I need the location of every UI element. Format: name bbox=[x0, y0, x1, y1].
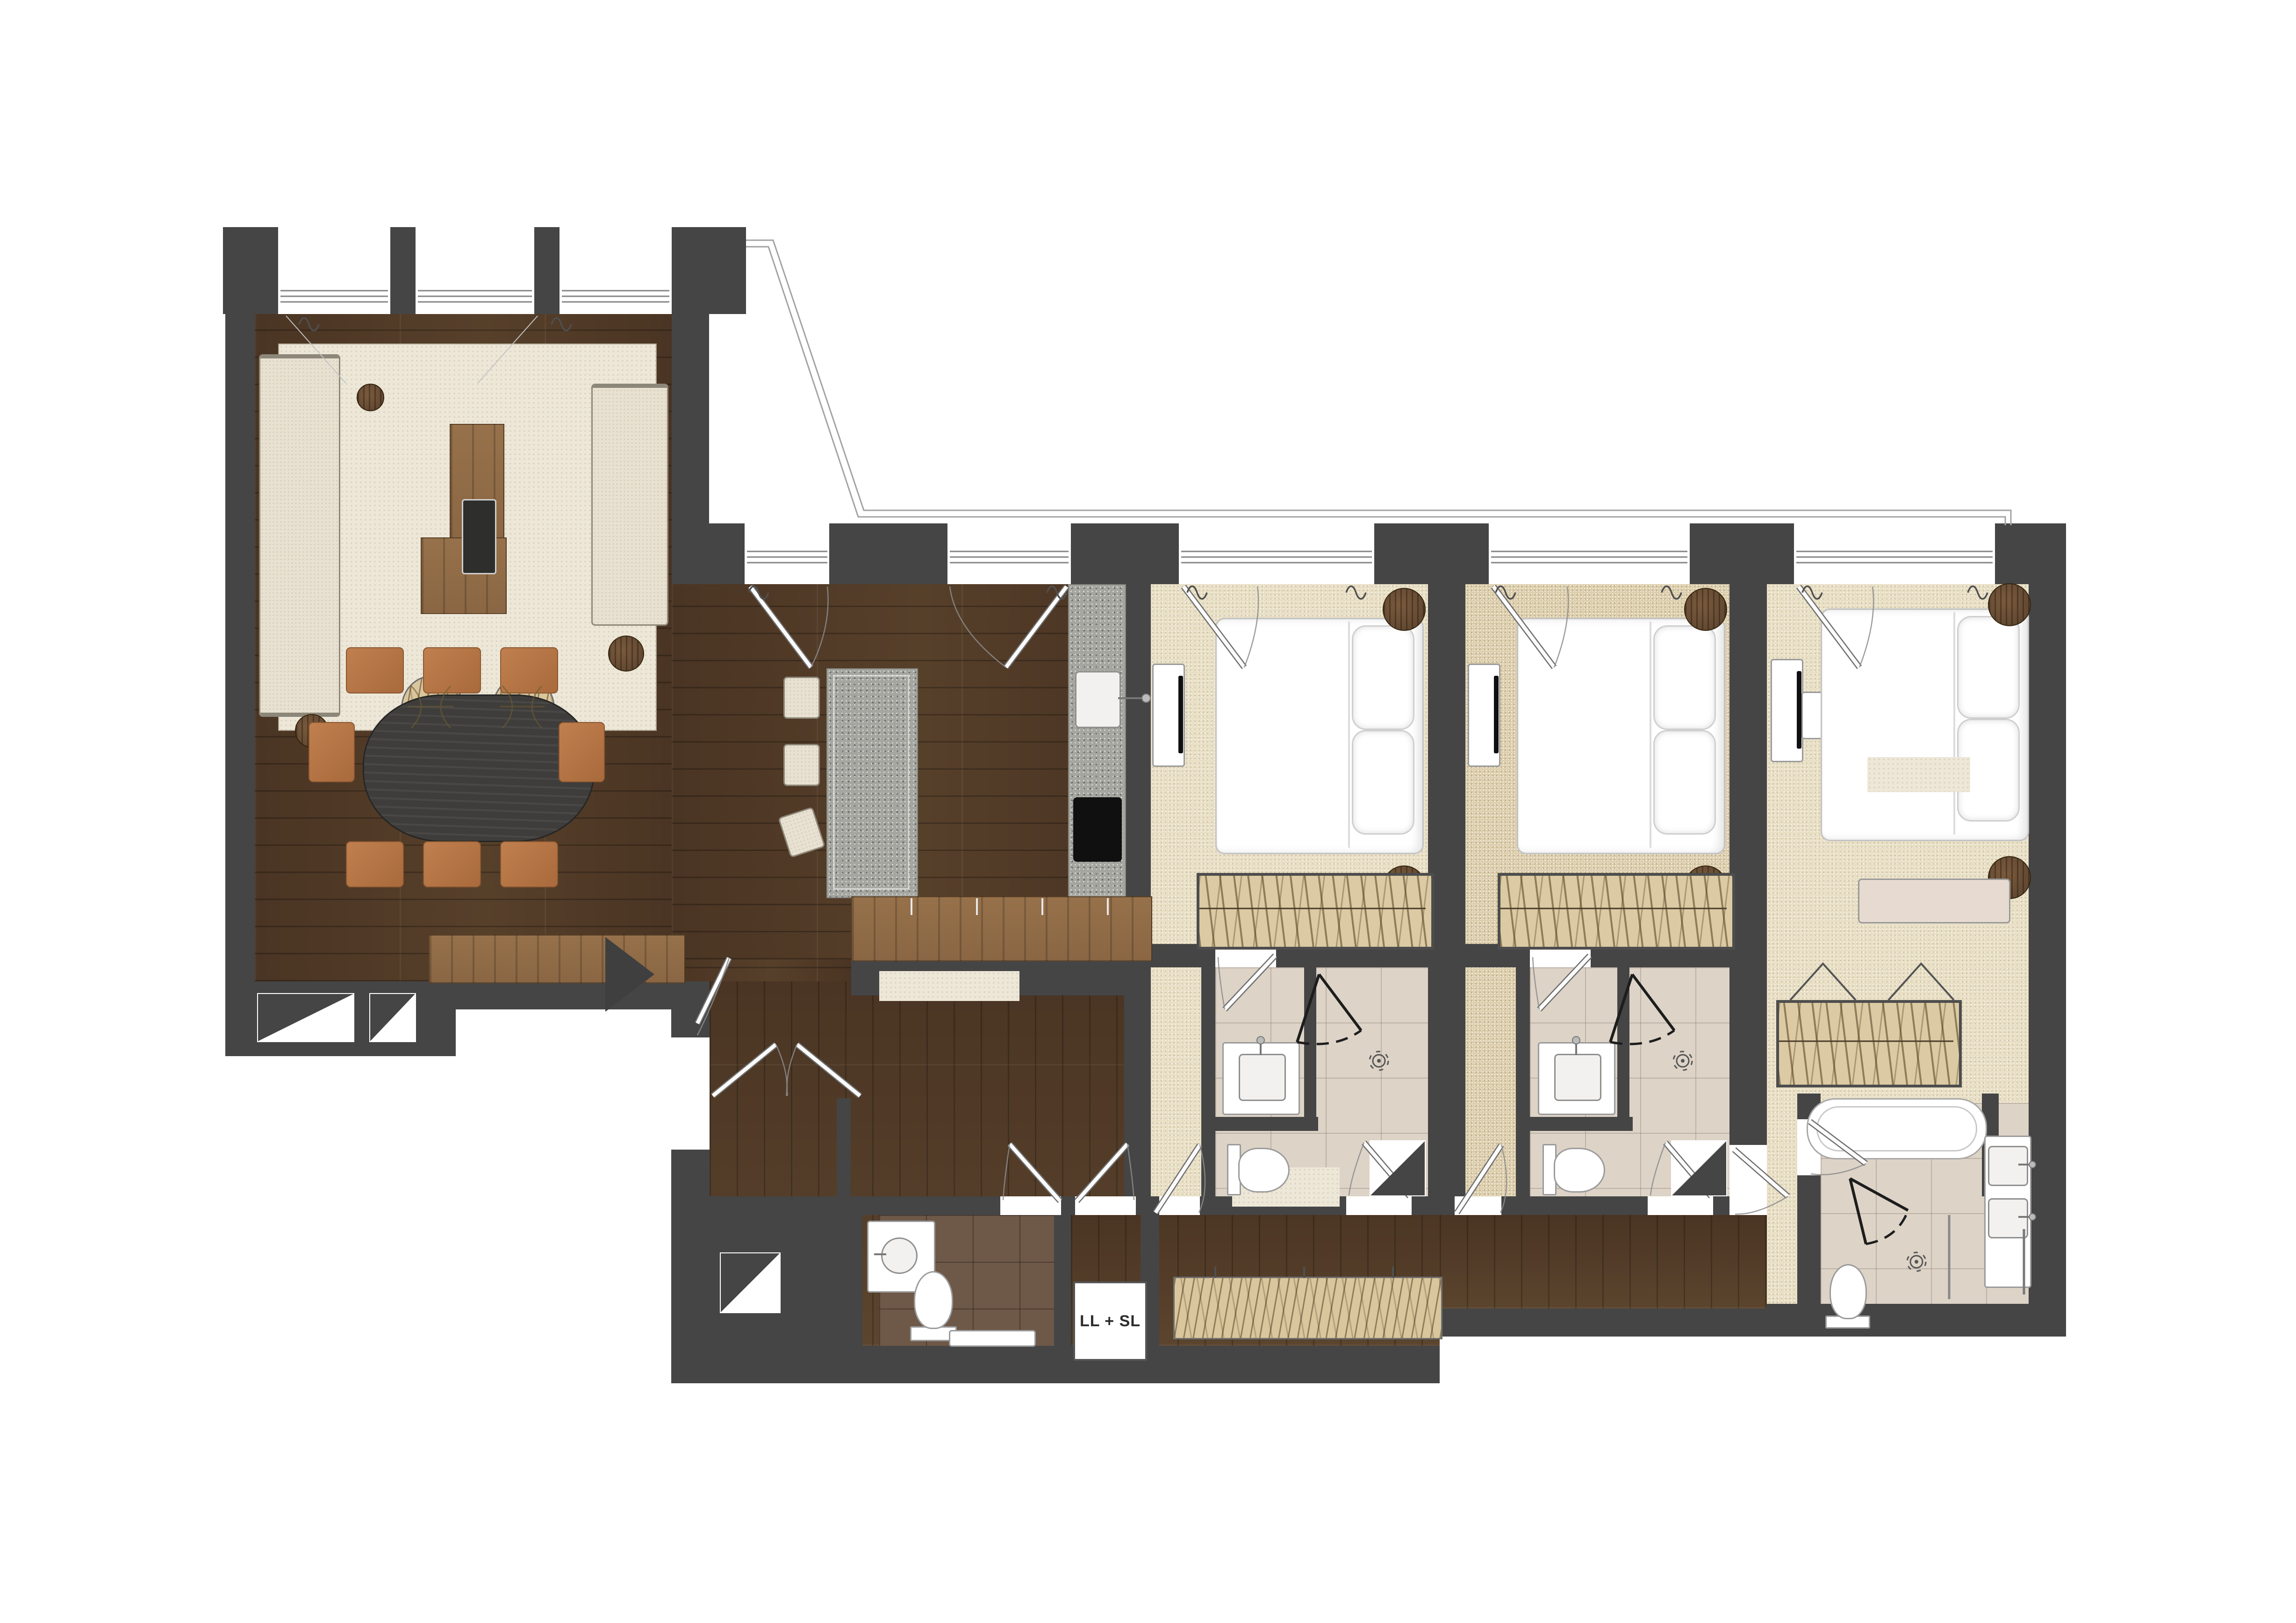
wall-west bbox=[225, 227, 255, 981]
wall-bath1-divider bbox=[1304, 967, 1316, 1117]
bedroom3-rug bbox=[1867, 757, 1970, 792]
wardrobe-bedroom3 bbox=[1776, 1000, 1962, 1087]
bed2-pillow bbox=[1653, 730, 1716, 835]
dining-chair bbox=[423, 647, 481, 694]
kitchen-island bbox=[826, 668, 918, 898]
corridor-floor bbox=[1440, 1215, 1797, 1308]
laundry-closet-box: LL + SL bbox=[1073, 1281, 1147, 1361]
bed1-pillow bbox=[1352, 730, 1414, 835]
toilet-bath2 bbox=[1554, 1148, 1605, 1193]
kitchen-cabinets bbox=[851, 896, 1152, 961]
ottoman-round bbox=[608, 636, 644, 672]
sink-bath1 bbox=[1239, 1054, 1286, 1101]
tv-bedroom2 bbox=[1494, 676, 1499, 753]
wall-bath1-partition bbox=[1215, 1117, 1318, 1131]
sofa-right bbox=[591, 384, 668, 626]
tv-bedroom1 bbox=[1178, 676, 1183, 753]
wall-bath2-west bbox=[1516, 967, 1530, 1196]
bedroom-2-window bbox=[1489, 523, 1690, 584]
wardrobe-bedroom2 bbox=[1498, 873, 1735, 950]
wall-south bbox=[671, 1346, 1440, 1383]
terrace-outline-inner bbox=[746, 247, 2005, 525]
dining-window bbox=[745, 523, 829, 584]
wall-entry-closet bbox=[837, 1098, 851, 1196]
bedroom1-door-opening bbox=[1153, 1196, 1200, 1215]
bed3-duvet-crease bbox=[1953, 612, 1955, 835]
side-table-small bbox=[357, 384, 384, 411]
wall-bath2-partition bbox=[1530, 1117, 1633, 1131]
kitchen-sink bbox=[1075, 671, 1121, 728]
bedroom-3-window bbox=[1794, 523, 1995, 584]
sink-bath2 bbox=[1554, 1054, 1601, 1101]
bed2-pillow bbox=[1653, 625, 1716, 730]
bedroom-1-window bbox=[1179, 523, 1374, 584]
dining-chair-end bbox=[309, 722, 355, 782]
master-sink-2 bbox=[1988, 1198, 2028, 1238]
cooktop bbox=[1073, 797, 1122, 862]
bathtub bbox=[1807, 1098, 1987, 1159]
bedroom-2-entry-strip bbox=[1465, 944, 1516, 1215]
kitchen-window bbox=[947, 523, 1071, 584]
wall-master-south bbox=[1767, 1304, 2066, 1337]
powder-sink bbox=[881, 1237, 918, 1274]
wall-entry-north bbox=[671, 1009, 710, 1037]
kitchen-runner bbox=[879, 971, 1019, 1001]
living-window-1 bbox=[278, 227, 390, 314]
column-niche-dining-2 bbox=[369, 993, 416, 1042]
powder-toilet bbox=[914, 1271, 953, 1329]
dining-chair-end bbox=[559, 722, 605, 782]
bed3-pillow bbox=[1957, 616, 2020, 719]
living-window-3 bbox=[560, 227, 672, 314]
toilet-bath1 bbox=[1238, 1148, 1290, 1193]
bath1-hall-door-opening bbox=[1346, 1196, 1412, 1215]
dining-console bbox=[429, 935, 685, 983]
wall-living-east bbox=[672, 314, 709, 584]
wall-bedroom2-bedroom3 bbox=[1729, 584, 1767, 1145]
wall-corridor-south bbox=[1440, 1308, 1767, 1337]
wall-bath2-divider bbox=[1617, 967, 1629, 1117]
powder-door-opening bbox=[1000, 1196, 1061, 1215]
bar-stool bbox=[783, 744, 820, 786]
wall-powder-laundry bbox=[1054, 1215, 1071, 1346]
wardrobe-bedroom1 bbox=[1197, 873, 1434, 950]
powder-shelf bbox=[949, 1330, 1036, 1347]
laundry-door-opening bbox=[1075, 1196, 1136, 1215]
sofa-left bbox=[259, 354, 340, 717]
bedroom-1-entry-strip bbox=[1151, 944, 1201, 1215]
floor-plan: LL + SL bbox=[0, 0, 2296, 1623]
bed2-duvet-crease bbox=[1650, 622, 1651, 848]
dining-chair bbox=[423, 841, 481, 887]
bed1-duvet-crease bbox=[1348, 622, 1350, 848]
tv-bedroom3 bbox=[1797, 671, 1801, 749]
tv-shelf-bedroom3 bbox=[1801, 692, 1823, 739]
column-niche-bath1 bbox=[1370, 1140, 1426, 1196]
column-niche-southwest bbox=[720, 1252, 781, 1313]
living-window-2 bbox=[416, 227, 534, 314]
laundry-label: LL + SL bbox=[1080, 1312, 1141, 1330]
master-sink-1 bbox=[1988, 1146, 2028, 1186]
bedroom3-bench bbox=[1858, 879, 2010, 923]
bed1-pillow bbox=[1352, 625, 1414, 730]
dining-chair bbox=[346, 841, 404, 887]
wall-bath1-west bbox=[1201, 967, 1215, 1196]
coffee-table-tray bbox=[462, 499, 496, 574]
bathtub-basin bbox=[1816, 1106, 1977, 1151]
master-toilet bbox=[1830, 1264, 1867, 1319]
bedroom-3-entry-strip bbox=[1767, 1145, 1797, 1308]
dining-chair bbox=[500, 647, 558, 694]
bedroom2-door-opening bbox=[1455, 1196, 1501, 1215]
wall-east bbox=[2029, 584, 2066, 1332]
terrace-outline bbox=[746, 240, 2011, 525]
column-niche-dining-1 bbox=[257, 993, 354, 1042]
hall-bench bbox=[1173, 1277, 1442, 1339]
nightstand-bedroom1 bbox=[1383, 588, 1426, 631]
nightstand-bedroom3 bbox=[1988, 583, 2031, 626]
dining-chair bbox=[500, 841, 558, 887]
bar-stool bbox=[783, 677, 820, 719]
bedroom3-door-opening bbox=[1729, 1150, 1767, 1215]
dining-chair bbox=[346, 647, 404, 694]
column-niche-bath2 bbox=[1671, 1140, 1727, 1196]
wall-console-south bbox=[456, 981, 710, 1009]
nightstand-bedroom2 bbox=[1684, 588, 1727, 631]
bath2-hall-door-opening bbox=[1648, 1196, 1713, 1215]
